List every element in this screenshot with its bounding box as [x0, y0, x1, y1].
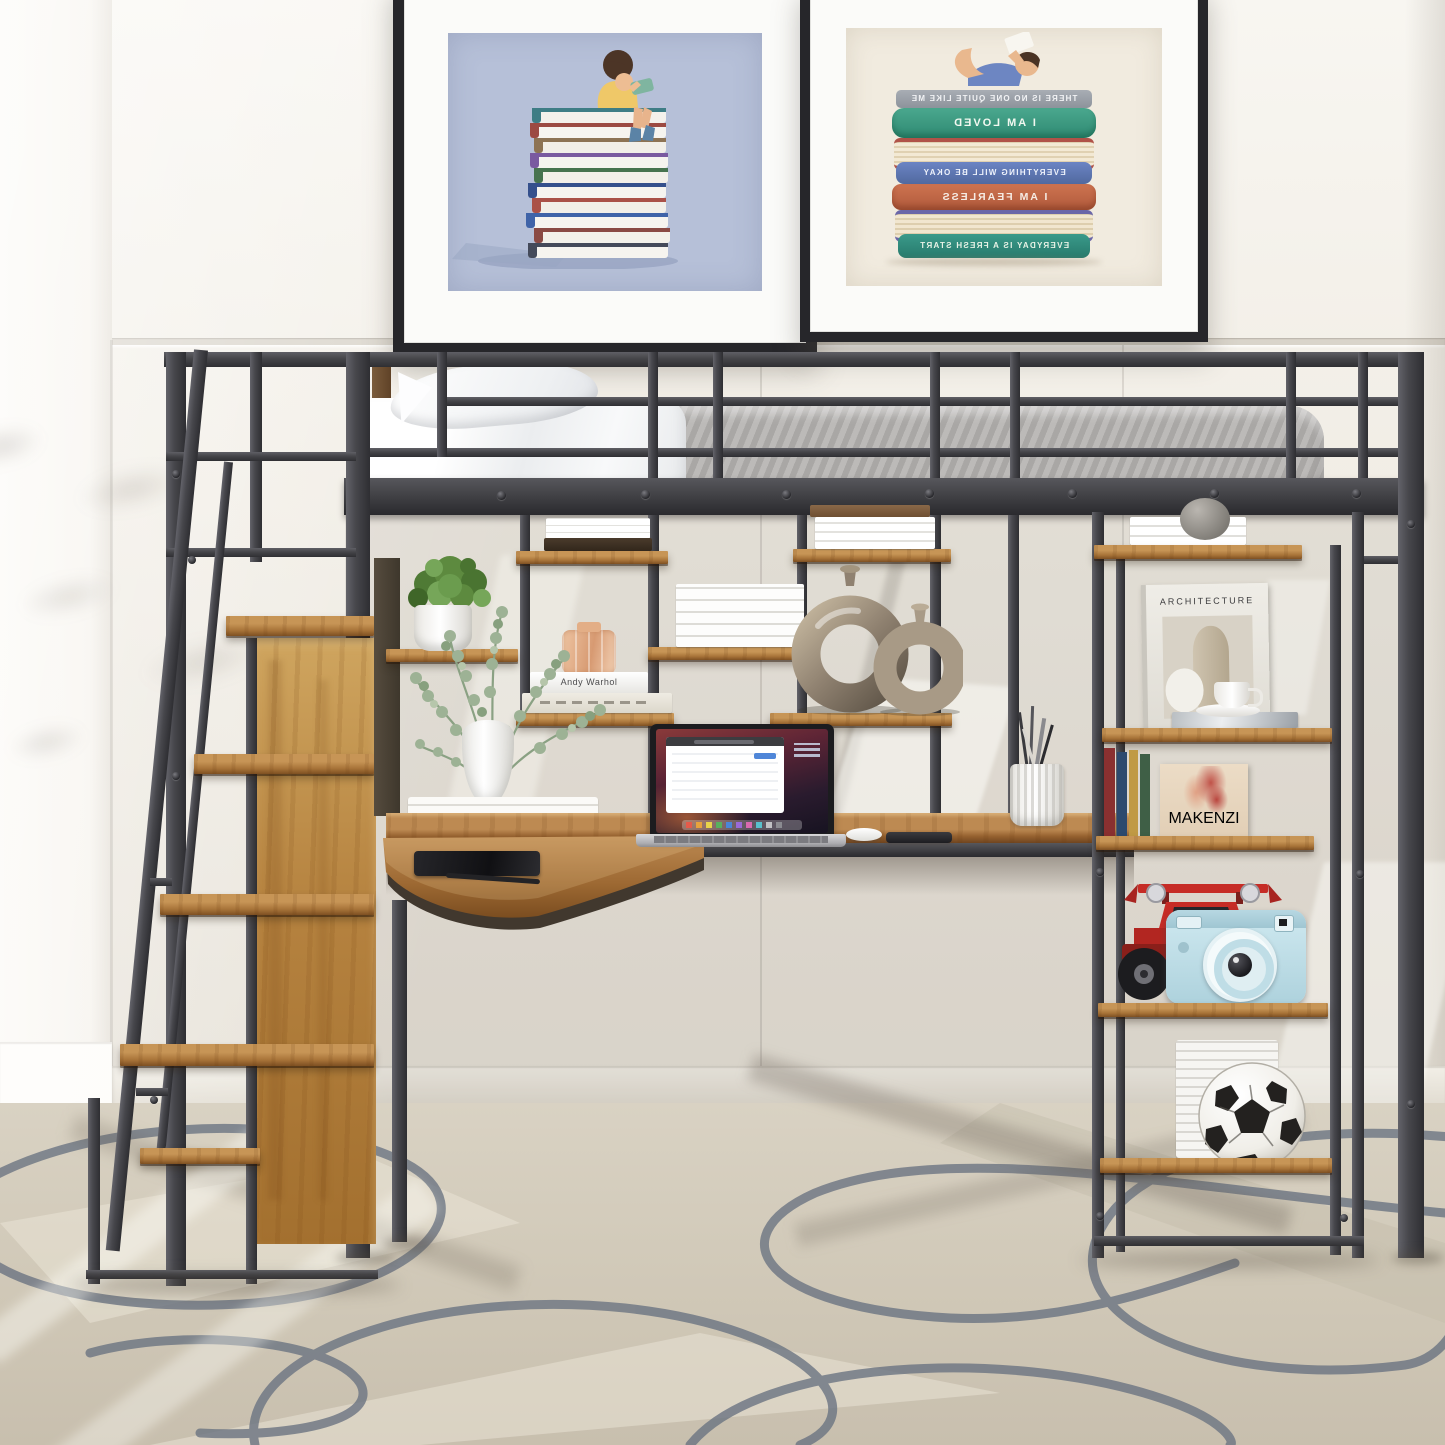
- bookcase-foot-bar: [1094, 1236, 1364, 1246]
- spine-quote: EVERYTHING WILL BE OKAY: [896, 168, 1092, 177]
- laptop-wallpaper: [656, 729, 828, 833]
- soccer-ball: [1197, 1061, 1307, 1171]
- leg-shadow: [382, 1238, 432, 1249]
- magazine-title: MAKENZI: [1160, 810, 1248, 828]
- camera-flash: [1176, 916, 1202, 929]
- notebook: [414, 851, 540, 876]
- brown-book: [810, 505, 930, 517]
- book-spine: [1140, 754, 1150, 836]
- guard-rail-post: [1010, 352, 1020, 482]
- bolt: [1407, 520, 1415, 528]
- laptop-screen: [650, 724, 834, 838]
- rivet: [1068, 489, 1077, 498]
- rivet: [497, 491, 506, 500]
- fashion-magazine: MAKENZI: [1160, 764, 1248, 836]
- teacup-handle: [1248, 688, 1263, 707]
- stair-front-post: [246, 638, 257, 1284]
- stack-shadow: [886, 258, 1102, 266]
- white-book-stack: [815, 517, 935, 549]
- dock-icon: [756, 822, 762, 828]
- spine-quote: EVERYDAY IS A FRESH START: [898, 241, 1090, 250]
- bookcase-shelf: [1096, 836, 1314, 850]
- framed-print-right: THERE IS NO ONE QUITE LIKE ME I AM LOVED…: [800, 0, 1208, 342]
- spine-quote: THERE IS NO ONE QUITE LIKE ME: [896, 94, 1092, 103]
- spine-quote: I AM LOVED: [892, 117, 1096, 129]
- art-left: [448, 33, 762, 291]
- quote-book: THERE IS NO ONE QUITE LIKE ME: [896, 90, 1092, 108]
- lens-glass: [1228, 953, 1252, 977]
- dock-icon: [686, 822, 692, 828]
- quote-book: EVERYDAY IS A FRESH START: [898, 234, 1090, 258]
- viewfinder-glass: [1279, 919, 1287, 926]
- bolt: [1356, 870, 1364, 878]
- camera-lens: [1203, 928, 1277, 1002]
- guard-rail-post: [437, 352, 447, 457]
- stair-tread: [120, 1044, 374, 1066]
- lens-glint: [1233, 957, 1239, 963]
- pencil-cup: [1010, 764, 1064, 826]
- stair-tread: [160, 894, 374, 915]
- guard-rail-post: [930, 352, 940, 482]
- app-window: [666, 737, 784, 813]
- instant-camera: [1166, 910, 1306, 1004]
- stair-bottom-shelf: [140, 1148, 260, 1164]
- book-spine: [1129, 750, 1138, 836]
- rivet: [641, 490, 650, 499]
- rivet: [1210, 489, 1219, 498]
- quote-book: EVERYTHING WILL BE OKAY: [896, 162, 1092, 184]
- handrail-connector: [136, 1088, 168, 1096]
- bookcase-shelf: [1098, 1003, 1328, 1017]
- bolt: [188, 556, 196, 564]
- stair-guard-bar: [166, 548, 356, 557]
- bookcase-leg: [1352, 512, 1364, 1258]
- window-rows: [672, 751, 778, 807]
- bolt: [1096, 1212, 1104, 1220]
- handrail-connector: [150, 878, 172, 886]
- bookcase-top-connector: [1364, 556, 1398, 564]
- bookcase-leg: [1092, 512, 1104, 1258]
- window-searchbar: [694, 740, 754, 744]
- white-book-stack: [546, 518, 650, 539]
- bookcase-shelf: [1100, 1158, 1332, 1173]
- wireless-mouse: [846, 828, 882, 841]
- guard-rail-post: [713, 352, 723, 482]
- window-accent: [754, 753, 776, 759]
- laptop-keyboard: [654, 836, 828, 843]
- art-left-illustration: [448, 33, 740, 269]
- bolt: [1096, 868, 1104, 876]
- guard-rail-bar: [350, 448, 1422, 457]
- bolt: [172, 772, 180, 780]
- camera-button: [1178, 942, 1189, 953]
- dock-icon: [746, 822, 752, 828]
- art-right: THERE IS NO ONE QUITE LIKE ME I AM LOVED…: [846, 28, 1162, 286]
- leg-shadow: [1392, 1252, 1444, 1264]
- stair-tread: [194, 754, 374, 774]
- dock-icon: [766, 822, 772, 828]
- guard-rail-post: [648, 352, 658, 482]
- dock-icon: [726, 822, 732, 828]
- quote-book: I AM LOVED: [892, 108, 1096, 138]
- dock-icon: [736, 822, 742, 828]
- bolt: [172, 470, 180, 478]
- laptop-base: [636, 834, 846, 847]
- smartphone: [886, 832, 952, 843]
- stair-leg: [88, 1098, 100, 1284]
- reading-boy: [938, 32, 1058, 92]
- dark-book: [544, 538, 652, 551]
- bolt: [150, 1096, 158, 1104]
- guard-rail-post: [1358, 352, 1368, 482]
- white-book-stack: [676, 584, 804, 647]
- bronze-ring-sculptures: [788, 556, 963, 716]
- magazine-figure: [1176, 766, 1234, 814]
- room-scene: THERE IS NO ONE QUITE LIKE ME I AM LOVED…: [0, 0, 1445, 1445]
- stair-cabinet-grain: [268, 660, 282, 1200]
- stone-sphere: [1180, 498, 1230, 540]
- camera-viewfinder: [1274, 915, 1294, 932]
- rivet: [925, 489, 934, 498]
- quote-book: I AM FEARLESS: [892, 184, 1096, 210]
- dock-icon: [696, 822, 702, 828]
- shelf-board: [648, 647, 810, 660]
- guard-rail-post: [1286, 352, 1296, 482]
- bookcase-shelf: [1094, 545, 1302, 559]
- leg-shadow: [70, 1276, 400, 1294]
- dock: [682, 820, 802, 830]
- leg-shadow: [336, 1252, 396, 1264]
- bookcase-shelf: [1102, 728, 1332, 742]
- dock-icon: [776, 822, 782, 828]
- rivet: [1352, 489, 1361, 498]
- dock-icon: [706, 822, 712, 828]
- spine-quote: I AM FEARLESS: [892, 191, 1096, 203]
- bed-post-right: [1398, 352, 1424, 1258]
- framed-print-left: [393, 0, 817, 354]
- bolt: [1340, 1214, 1348, 1222]
- rivet: [782, 490, 791, 499]
- stair-tread: [226, 616, 374, 636]
- desk-wing-leg: [392, 900, 407, 1242]
- bolt: [1407, 1100, 1415, 1108]
- leg-shadow: [1080, 1252, 1380, 1268]
- architecture-title: ARCHITECTURE: [1146, 595, 1268, 607]
- dock-icon: [716, 822, 722, 828]
- screen-text-lines: [794, 743, 820, 757]
- bookcase-leg: [1330, 545, 1341, 1255]
- teacup: [1214, 682, 1250, 708]
- book-spine: [1117, 752, 1127, 836]
- book-spine: [1104, 748, 1115, 836]
